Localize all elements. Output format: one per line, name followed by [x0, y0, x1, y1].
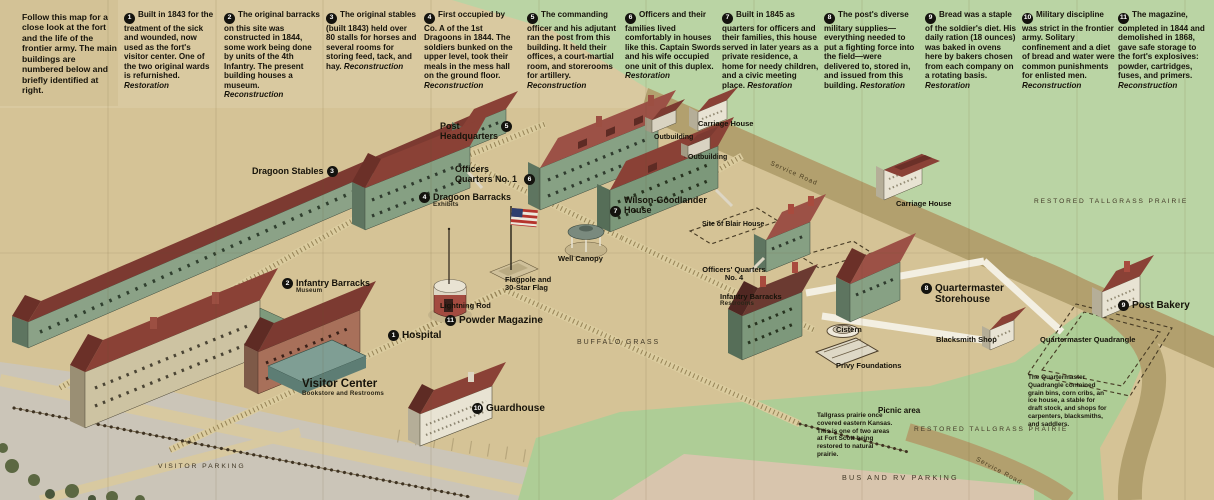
label-text: Post Headquarters [440, 121, 498, 141]
label-lightning-rod: Lightning Rod [440, 302, 491, 310]
legend-tag: Reconstruction [1022, 81, 1081, 90]
legend-item-9: 9Bread was a staple of the soldier's die… [925, 10, 1019, 90]
label-text: Hospital [402, 330, 441, 341]
note-quartermaster-quadrangle: The Quartermaster Quadrangle contained g… [1028, 374, 1108, 429]
label-infantry-barracks-restrooms: Infantry BarracksRestrooms [720, 293, 782, 308]
legend-text: Officers and their families lived comfor… [625, 10, 721, 71]
intro-text: Follow this map for a close look at the … [22, 12, 119, 96]
label-text: Infantry BarracksMuseum [296, 278, 370, 295]
label-officers-quarters-1: Officers Quarters No. 16 [455, 164, 535, 185]
legend-item-1: 1Built in 1843 for the treatment of the … [124, 10, 216, 90]
map-number-badge: 1 [388, 330, 399, 341]
label-carriage-house-2: Carriage House [896, 200, 951, 208]
label-dragoon-barracks: 4Dragoon BarracksExhibits [419, 192, 511, 209]
legend-number-badge: 10 [1022, 13, 1033, 24]
label-post-bakery: 9Post Bakery [1118, 300, 1190, 311]
label-blacksmith-shop: Blacksmith Shop [936, 336, 997, 344]
map-number-badge: 10 [472, 403, 483, 414]
legend-number-badge: 8 [824, 13, 835, 24]
label-text: Powder Magazine [459, 315, 543, 326]
legend-text: The post's diverse military supplies—eve… [824, 10, 914, 90]
legend-number-badge: 4 [424, 13, 435, 24]
note-tallgrass-prairie: Tallgrass prairie once covered eastern K… [817, 412, 893, 459]
label-visitor-center: Visitor CenterBookstore and Restrooms [302, 378, 384, 398]
label-cistern: Cistern [836, 326, 862, 334]
label-powder-magazine: 11Powder Magazine [445, 315, 543, 326]
legend-number-badge: 2 [224, 13, 235, 24]
label-outbuilding-2: Outbuilding [688, 154, 727, 162]
label-guardhouse: 10Guardhouse [472, 403, 545, 414]
legend-item-6: 6Officers and their families lived comfo… [625, 10, 721, 81]
label-text: Quartermaster Storehouse [935, 283, 1019, 305]
label-post-headquarters: Post Headquarters5 [440, 121, 512, 141]
map-number-badge: 9 [1118, 300, 1129, 311]
label-picnic-area: Picnic area [878, 407, 920, 416]
label-quartermaster-storehouse: 8Quartermaster Storehouse [921, 283, 1019, 305]
legend-number-badge: 5 [527, 13, 538, 24]
map-number-badge: 5 [501, 121, 512, 132]
legend-tag: Restoration [124, 81, 169, 90]
legend-number-badge: 11 [1118, 13, 1129, 24]
legend-text: Built in 1843 for the treatment of the s… [124, 10, 213, 80]
label-restored-tallgrass-1: RESTORED TALLGRASS PRAIRIE [1034, 198, 1188, 205]
label-buffalo-grass: BUFFALO GRASS [577, 339, 660, 346]
legend-number-badge: 1 [124, 13, 135, 24]
legend-item-4: 4First occupied by Co. A of the 1st Drag… [424, 10, 518, 90]
label-text: Visitor Center [302, 378, 377, 390]
label-flagpole: Flagpole and 30-Star Flag [505, 276, 563, 293]
label-text: Dragoon BarracksExhibits [433, 192, 511, 209]
label-wilson-goodlander: 7Wilson-Goodlander House [610, 195, 710, 217]
legend-number-badge: 6 [625, 13, 636, 24]
legend-tag: Restoration [925, 81, 970, 90]
legend-tag: Restoration [625, 71, 670, 80]
legend-text: Military discipline was strict in the fr… [1022, 10, 1115, 80]
legend-text: Built in 1845 as quarters for officers a… [722, 10, 818, 90]
label-text: Guardhouse [486, 403, 545, 414]
label-dragoon-stables: Dragoon Stables3 [252, 166, 338, 177]
legend-number-badge: 7 [722, 13, 733, 24]
map-number-badge: 2 [282, 278, 293, 289]
map-number-badge: 6 [524, 174, 535, 185]
fort-scott-map-page: Follow this map for a close look at the … [0, 0, 1214, 500]
label-hospital: 1Hospital [388, 330, 441, 341]
us-flag [511, 208, 538, 227]
label-restored-tallgrass-2: RESTORED TALLGRASS PRAIRIE [914, 426, 1068, 433]
label-site-of-blair-house: Site of Blair House [702, 221, 764, 229]
legend-text: The original barracks on this site was c… [224, 10, 320, 90]
legend-item-10: 10Military discipline was strict in the … [1022, 10, 1116, 90]
legend-tag: Reconstruction [527, 81, 586, 90]
map-number-badge: 11 [445, 315, 456, 326]
map-number-badge: 8 [921, 283, 932, 294]
legend-text: Bread was a staple of the soldier's diet… [925, 10, 1016, 80]
label-text: Post Bakery [1132, 300, 1190, 311]
label-outbuilding-1: Outbuilding [654, 134, 693, 142]
legend-tag: Reconstruction [1118, 81, 1177, 90]
label-officers-quarters-4: Officers' Quarters No. 4 [698, 266, 770, 283]
legend-item-8: 8The post's diverse military supplies—ev… [824, 10, 918, 90]
label-visitor-parking: VISITOR PARKING [158, 463, 246, 470]
label-text: Wilson-Goodlander House [624, 195, 710, 215]
map-number-badge: 7 [610, 206, 621, 217]
legend-tag: Reconstruction [224, 90, 283, 99]
label-quartermaster-quadrangle: Quartermaster Quadrangle [1040, 336, 1135, 344]
legend-item-2: 2The original barracks on this site was … [224, 10, 320, 100]
label-privy-foundations: Privy Foundations [836, 362, 901, 370]
legend-text: The magazine, completed in 1844 and demo… [1118, 10, 1205, 80]
label-bus-rv-parking: BUS AND RV PARKING [842, 473, 959, 482]
label-infantry-barracks-museum: 2Infantry BarracksMuseum [282, 278, 370, 295]
legend-tag: Reconstruction [424, 81, 483, 90]
legend-tag: Reconstruction [344, 62, 403, 71]
legend-tag: Restoration [747, 81, 792, 90]
map-number-badge: 4 [419, 192, 430, 203]
legend-item-7: 7Built in 1845 as quarters for officers … [722, 10, 820, 90]
label-text: Officers Quarters No. 1 [455, 164, 521, 184]
legend-item-11: 11The magazine, completed in 1844 and de… [1118, 10, 1210, 90]
legend-text: First occupied by Co. A of the 1st Drago… [424, 10, 513, 80]
legend-text: The commanding officer and his adjutant … [527, 10, 616, 80]
label-text: Dragoon Stables [252, 166, 324, 176]
legend-number-badge: 9 [925, 13, 936, 24]
legend-item-3: 3The original stables (built 1843) held … [326, 10, 418, 71]
label-well-canopy: Well Canopy [558, 255, 603, 263]
map-number-badge: 3 [327, 166, 338, 177]
legend-tag: Restoration [860, 81, 905, 90]
label-carriage-house-1: Carriage House [698, 120, 753, 128]
legend-item-5: 5The commanding officer and his adjutant… [527, 10, 621, 90]
legend-number-badge: 3 [326, 13, 337, 24]
